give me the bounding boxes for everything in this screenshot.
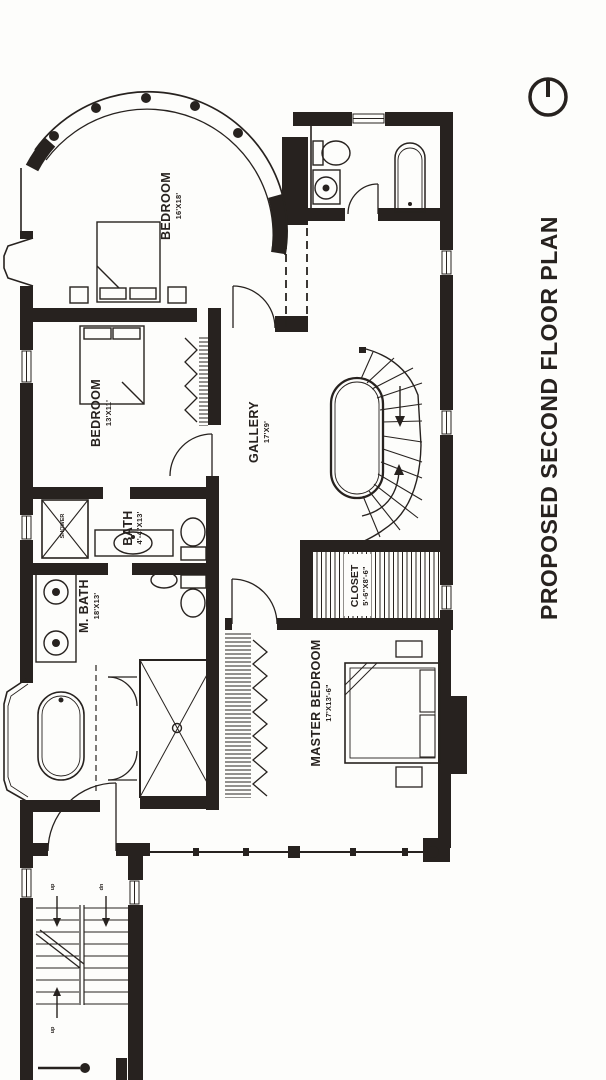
room-label-bedroom-1: BEDROOM 16'X18' [159, 172, 183, 240]
floor-plan-page: BEDROOM 16'X18' BEDROOM 13'X11' GALLERY … [0, 0, 606, 1080]
room-label-master-bedroom: MASTER BEDROOM 17'X13'-6" [309, 639, 333, 766]
room-label-master-bath: M. BATH 18'X13' [77, 579, 101, 633]
svg-text:BATH: BATH [121, 510, 135, 545]
sink-upper-bath [313, 170, 340, 204]
svg-text:BEDROOM: BEDROOM [89, 379, 103, 447]
svg-text:5'-6"X8'-6": 5'-6"X8'-6" [361, 566, 370, 606]
svg-text:up: up [50, 1026, 56, 1033]
floor-plan-drawing: BEDROOM 16'X18' BEDROOM 13'X11' GALLERY … [0, 0, 606, 1080]
svg-text:BEDROOM: BEDROOM [159, 172, 173, 240]
room-label-gallery: GALLERY 17'X9' [247, 401, 271, 463]
svg-text:GALLERY: GALLERY [247, 401, 261, 463]
room-label-shower: SHOWER [60, 514, 66, 539]
svg-text:MASTER BEDROOM: MASTER BEDROOM [309, 639, 323, 766]
room-label-bath: BATH 4'-4"X13' [121, 510, 144, 545]
switchback-arrows [53, 896, 110, 1018]
switchback-stair-treads [36, 908, 128, 1004]
svg-text:17'X13'-6": 17'X13'-6" [324, 684, 333, 722]
svg-text:up: up [50, 883, 56, 890]
svg-text:M. BATH: M. BATH [77, 579, 91, 633]
switchback-staircase [36, 896, 143, 1080]
plan-title: PROPOSED SECOND FLOOR PLAN [536, 216, 562, 620]
svg-text:18'X13': 18'X13' [92, 593, 101, 620]
closet-hatch-master-top [312, 552, 440, 618]
window-nook [4, 231, 33, 294]
closet-hatch-bedroom2 [185, 336, 208, 426]
dashed-opening [286, 228, 307, 330]
room-label-bedroom-2: BEDROOM 13'X11' [89, 379, 113, 447]
svg-text:CLOSET: CLOSET [349, 564, 361, 607]
svg-text:17'X9': 17'X9' [262, 421, 271, 443]
bed-master [345, 641, 440, 787]
svg-text:13'X11': 13'X11' [104, 400, 113, 426]
stair-label-up-1: up [50, 883, 56, 890]
bathtub-upper-bath [395, 143, 425, 212]
railing [150, 846, 439, 858]
svg-text:4'-4"X13': 4'-4"X13' [135, 511, 144, 544]
tub-bay [4, 678, 28, 802]
closet-hatch-master-side [225, 632, 267, 798]
curved-staircase [331, 347, 422, 546]
svg-text:dn: dn [99, 883, 105, 890]
stair-label-dn: dn [99, 883, 105, 890]
svg-text:16'X18': 16'X18' [174, 193, 183, 220]
shower-stall-master [96, 660, 215, 797]
room-label-closet: CLOSET 5'-6"X8'-6" [344, 554, 371, 616]
curved-stair-treads [361, 352, 422, 537]
toilet-bath [181, 518, 206, 560]
bathtub-master [38, 692, 84, 780]
toilet-master-bath [151, 572, 206, 617]
north-arrow-icon [530, 79, 566, 115]
vanity-master-bath [36, 570, 76, 662]
stair-label-up-2: up [50, 1026, 56, 1033]
toilet-upper-bath [313, 141, 350, 165]
svg-text:SHOWER: SHOWER [60, 514, 66, 539]
